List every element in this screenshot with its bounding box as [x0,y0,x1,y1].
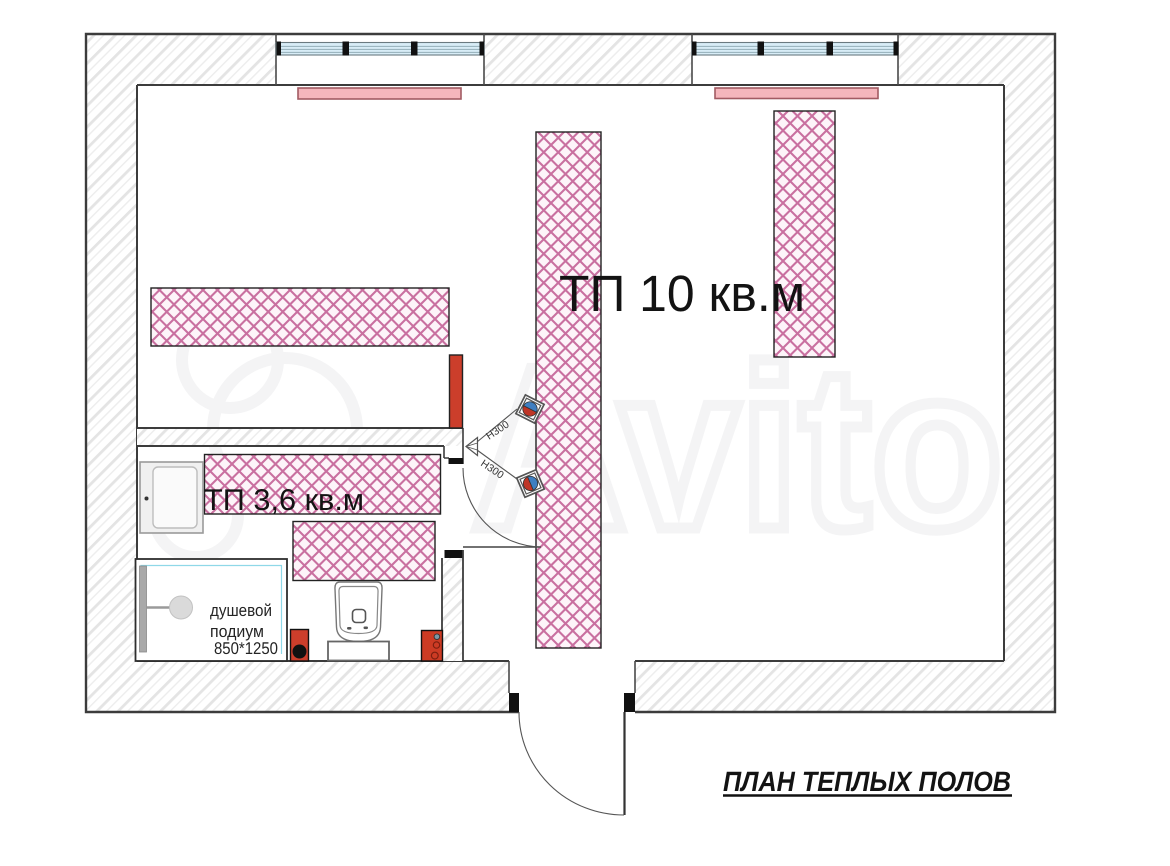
svg-text:ТП 3,6 кв.м: ТП 3,6 кв.м [204,484,364,517]
svg-text:ПЛАН ТЕПЛЫХ ПОЛОВ: ПЛАН ТЕПЛЫХ ПОЛОВ [723,766,1011,797]
svg-text:ТП 10 кв.м: ТП 10 кв.м [559,265,805,322]
svg-text:душевой: душевой [210,601,272,620]
svg-text:850*1250: 850*1250 [214,639,278,658]
